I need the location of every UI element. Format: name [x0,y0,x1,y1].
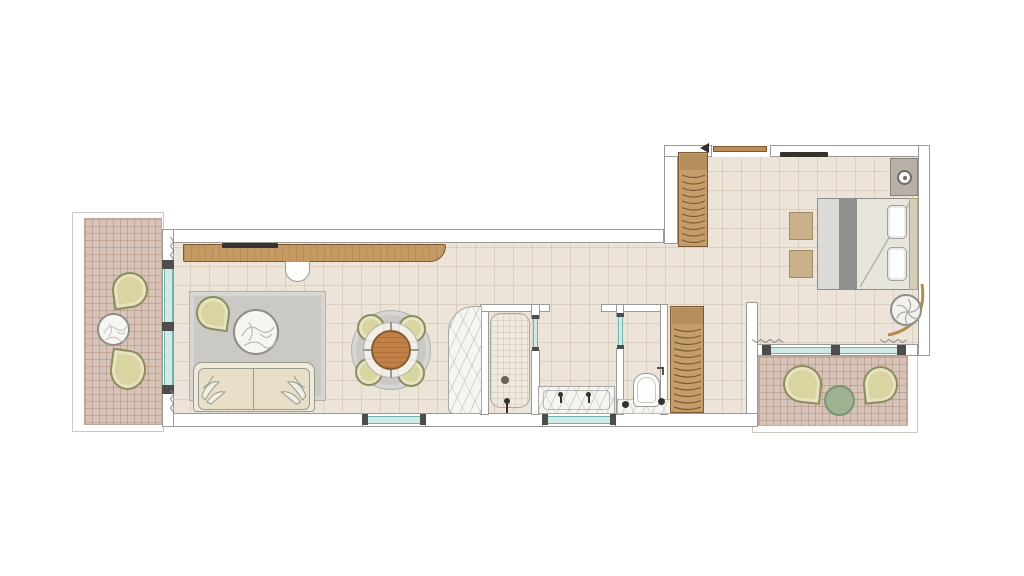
curtain-bedroom-left [752,336,786,347]
south-window-vanity-post-r [610,414,616,425]
dining-ring-tick-e [411,349,419,351]
wc-door-cap-t [617,313,624,317]
tv-bedroom [780,152,828,157]
shower-glass-door [533,317,538,350]
shower-door-cap-b [532,347,539,351]
sofa-pillow-right [277,372,309,406]
shower-tray [490,313,530,408]
headboard [909,198,918,290]
wc-door-cap-b [617,345,624,349]
floor-plan [0,0,1024,576]
wardrobe-hall [670,306,704,413]
entry-door [713,146,767,152]
south-window-living-post-r [420,414,426,425]
shower-fixture-stem [506,403,508,413]
south-window-living [364,416,424,424]
wardrobe-bedroom [678,152,708,247]
faucet-right-stem [588,396,590,403]
terrace-left-table [97,313,130,346]
pillow-2 [887,247,907,281]
pillow-1 [887,205,907,239]
stone-partition [448,306,482,414]
wc-glass-door [618,315,623,348]
dining-ring-tick-w [363,349,371,351]
wall-wc-north [601,304,668,312]
faucet-left-stem [560,396,562,403]
west-mullion-top [162,260,174,269]
dining-table [371,330,411,370]
wc-floor-fixture-r [658,398,665,405]
wall-step-vertical [664,145,678,244]
curtain-west-bottom [167,390,179,414]
sofa-seam [253,369,254,409]
dining-ring-tick-n [390,322,392,330]
sofa-pillow-left [199,372,229,406]
tv-living [222,243,278,248]
toilet-seat-line [637,377,656,403]
south-window-living-post-l [362,414,368,425]
coffee-table [233,309,279,355]
wc-floor-fixture-l [622,401,629,408]
shower-door-cap-t [532,315,539,319]
terrace-south-table [824,385,855,416]
south-window-vanity [545,416,613,424]
south-window-vanity-post-l [542,414,548,425]
paper-holder-icon [657,367,664,375]
lamp-center [903,176,907,180]
bench-1 [789,212,813,240]
wall-hall-terrace-divider [746,302,758,427]
west-mullion-mid [162,322,174,331]
wall-living-north [162,229,664,243]
dining-ring-tick-s [390,370,392,378]
potted-plant [890,294,922,326]
curtain-west-top [167,237,179,261]
shower-drain [501,376,509,384]
bench-2 [789,250,813,278]
bedroom-glass-mullion-m [831,345,840,355]
vanity-basin-line [543,390,610,410]
wall-south [162,413,758,427]
